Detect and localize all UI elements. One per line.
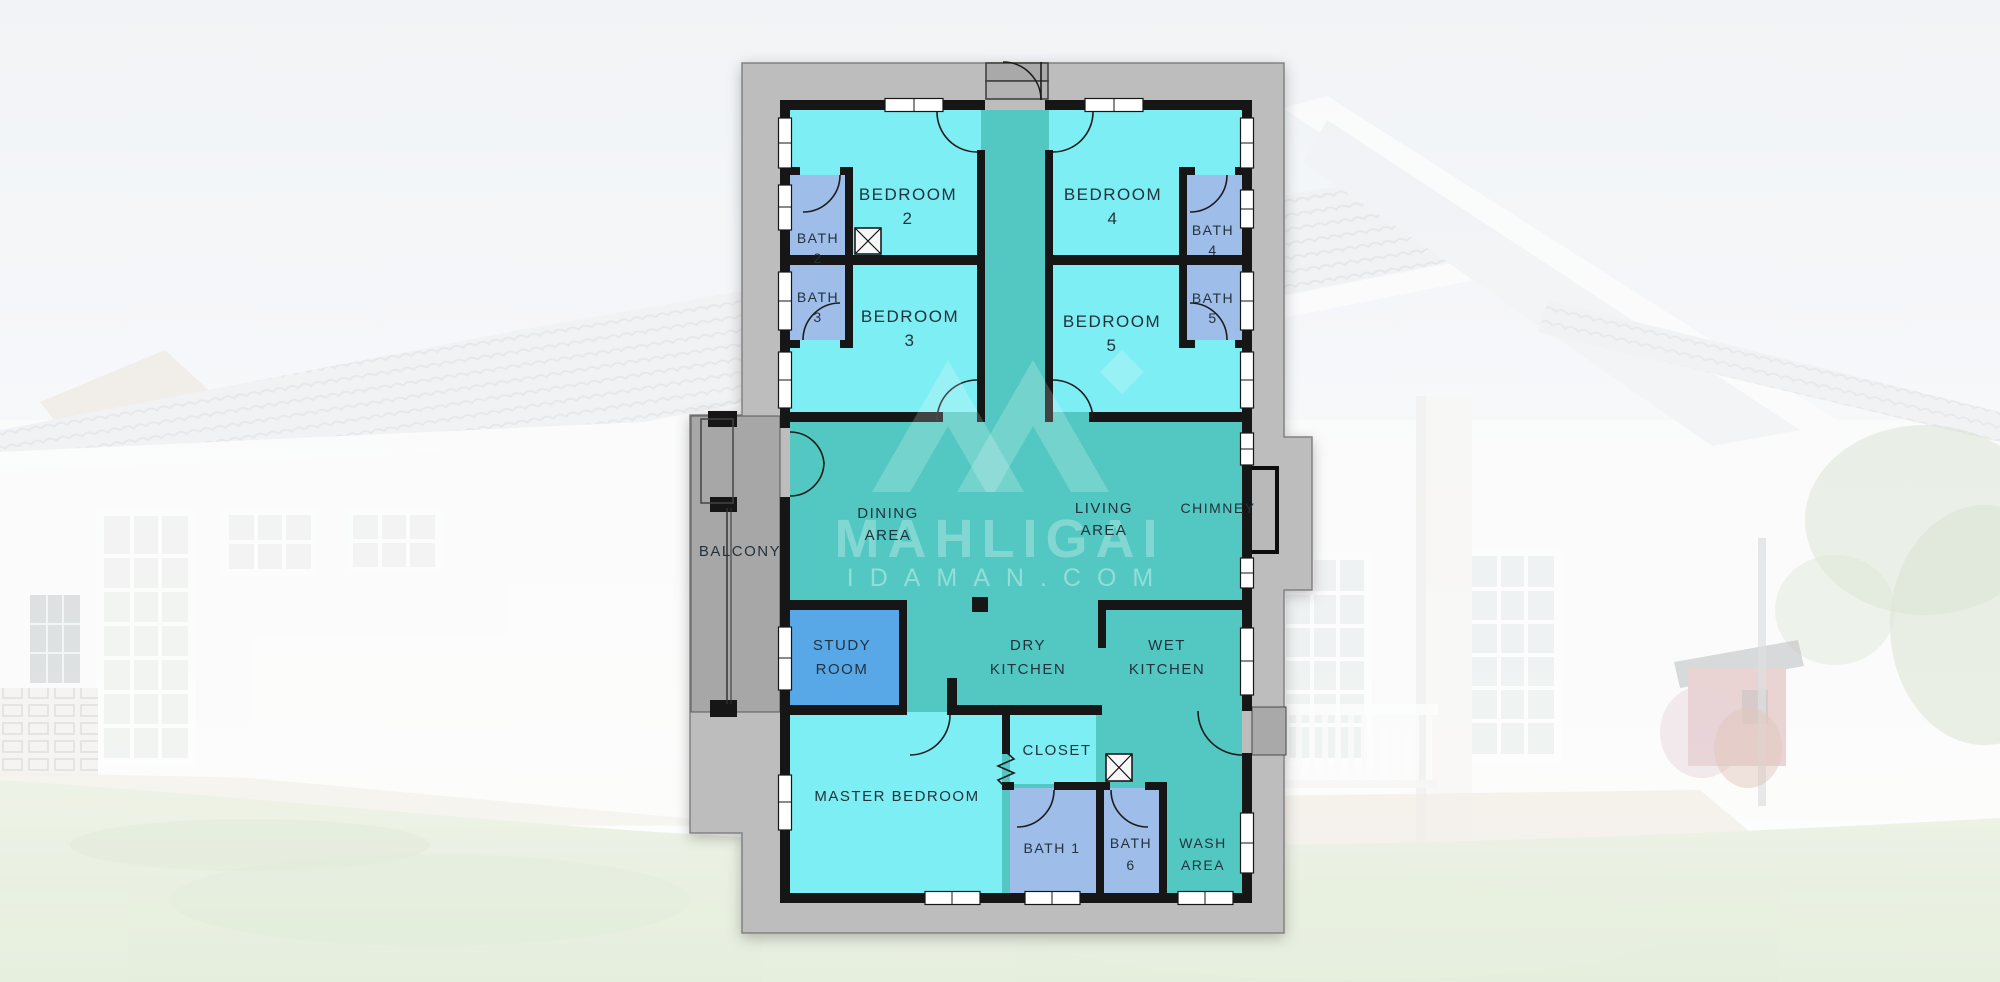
label-master-bedroom: MASTER BEDROOM	[814, 788, 979, 805]
svg-text:5: 5	[1107, 336, 1118, 355]
svg-text:4: 4	[1108, 209, 1119, 228]
svg-text:6: 6	[1126, 857, 1135, 873]
svg-text:3: 3	[905, 331, 916, 350]
label-bath-6: BATH	[1110, 835, 1152, 851]
label-wash-area: WASH	[1179, 835, 1226, 851]
svg-text:KITCHEN: KITCHEN	[1129, 661, 1205, 678]
label-bath-4: BATH	[1192, 222, 1234, 238]
label-closet: CLOSET	[1022, 742, 1091, 759]
svg-text:AREA: AREA	[1081, 522, 1128, 539]
watermark-domain: IDAMAN.COM	[847, 564, 1170, 592]
shaft-symbol-wet-kitchen	[1106, 754, 1132, 781]
svg-text:AREA: AREA	[1181, 857, 1225, 873]
svg-text:2: 2	[813, 250, 822, 266]
entrance-steps	[986, 63, 1048, 99]
screenshot-stage: MAHLIGAI IDAMAN.COM BEDROOM 2 BATH 2 BAT…	[0, 0, 2000, 982]
side-step	[1252, 707, 1286, 755]
label-bedroom-4: BEDROOM	[1064, 185, 1162, 204]
balcony-floor	[691, 416, 780, 712]
svg-text:3: 3	[813, 309, 822, 325]
label-balcony: BALCONY	[699, 543, 781, 560]
svg-text:AREA: AREA	[865, 527, 912, 544]
label-study-room: STUDY	[813, 637, 871, 654]
label-dry-kitchen: DRY	[1010, 637, 1046, 654]
label-wet-kitchen: WET	[1148, 637, 1186, 654]
room-study-floor	[790, 610, 899, 705]
svg-text:4: 4	[1208, 242, 1217, 258]
label-bath-3: BATH	[797, 289, 839, 305]
label-bath-1: BATH 1	[1024, 840, 1081, 856]
floorplan-scene: MAHLIGAI IDAMAN.COM BEDROOM 2 BATH 2 BAT…	[0, 0, 2000, 982]
label-bedroom-5: BEDROOM	[1063, 312, 1161, 331]
label-bedroom-3: BEDROOM	[861, 307, 959, 326]
shaft-symbol-bedroom2	[855, 228, 881, 254]
svg-text:2: 2	[903, 209, 914, 228]
floorplan: MAHLIGAI IDAMAN.COM BEDROOM 2 BATH 2 BAT…	[690, 62, 1312, 933]
label-living-area: LIVING	[1075, 500, 1133, 517]
label-bath-2: BATH	[797, 230, 839, 246]
label-dining-area: DINING	[857, 505, 919, 522]
svg-text:ROOM: ROOM	[816, 661, 869, 678]
label-bath-5: BATH	[1192, 290, 1234, 306]
label-chimney: CHIMNEY	[1180, 500, 1255, 516]
svg-text:5: 5	[1208, 310, 1217, 326]
label-bedroom-2: BEDROOM	[859, 185, 957, 204]
svg-text:KITCHEN: KITCHEN	[990, 661, 1066, 678]
